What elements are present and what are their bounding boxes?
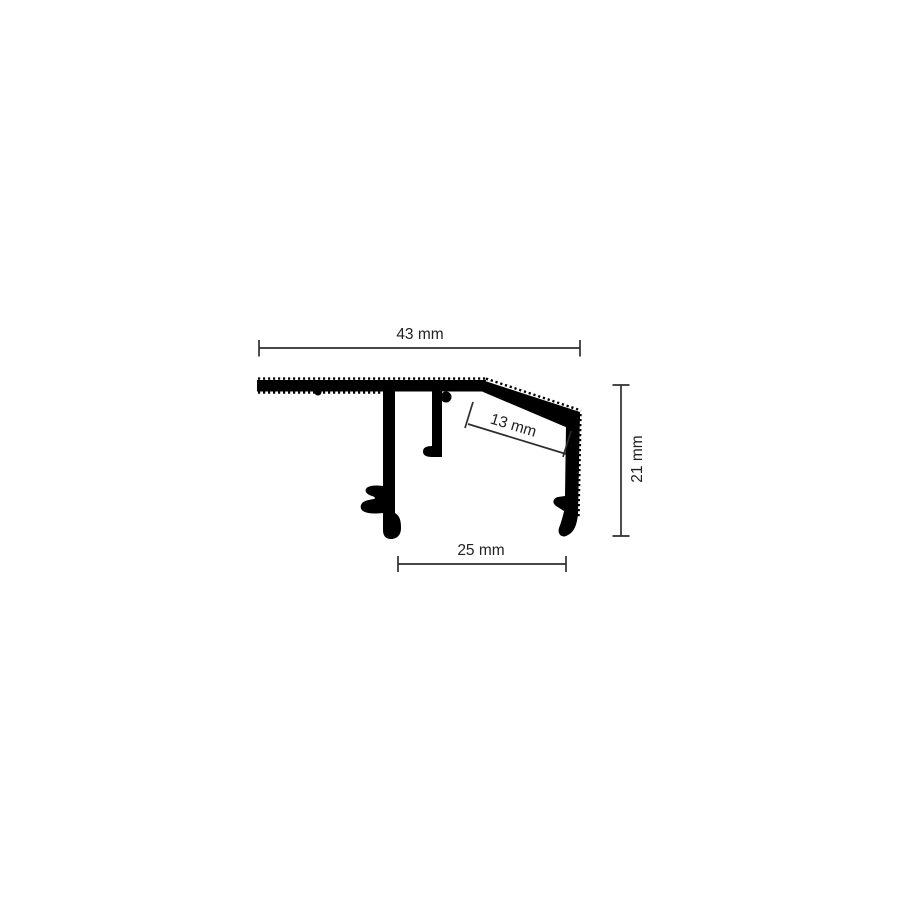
profile-left-leg-clip <box>361 485 383 513</box>
profile-top-flange <box>257 380 486 392</box>
profile-hook-bump <box>441 392 452 403</box>
dim-total-width: 43 mm <box>259 326 580 357</box>
dim-inner-slope-label: 13 mm <box>488 411 538 441</box>
dim-height: 21 mm <box>613 385 647 536</box>
dim-total-width-label: 43 mm <box>396 326 443 343</box>
dim-base-width-label: 25 mm <box>457 542 504 559</box>
profile-shape <box>257 380 580 539</box>
dim-height-label: 21 mm <box>629 435 646 482</box>
technical-drawing-canvas: 43 mm 13 mm 21 mm 25 mm <box>0 0 900 900</box>
dimension-annotations: 43 mm 13 mm 21 mm 25 mm <box>259 326 646 572</box>
profile-hook-notch <box>446 402 456 412</box>
profile-right-wall <box>553 412 580 536</box>
profile-hook-rib <box>432 390 442 448</box>
dim-base-width: 25 mm <box>398 542 566 572</box>
profile-cross-section-svg: 43 mm 13 mm 21 mm 25 mm <box>0 0 900 900</box>
profile-left-leg <box>383 390 401 539</box>
profile-hook-foot <box>423 446 442 457</box>
